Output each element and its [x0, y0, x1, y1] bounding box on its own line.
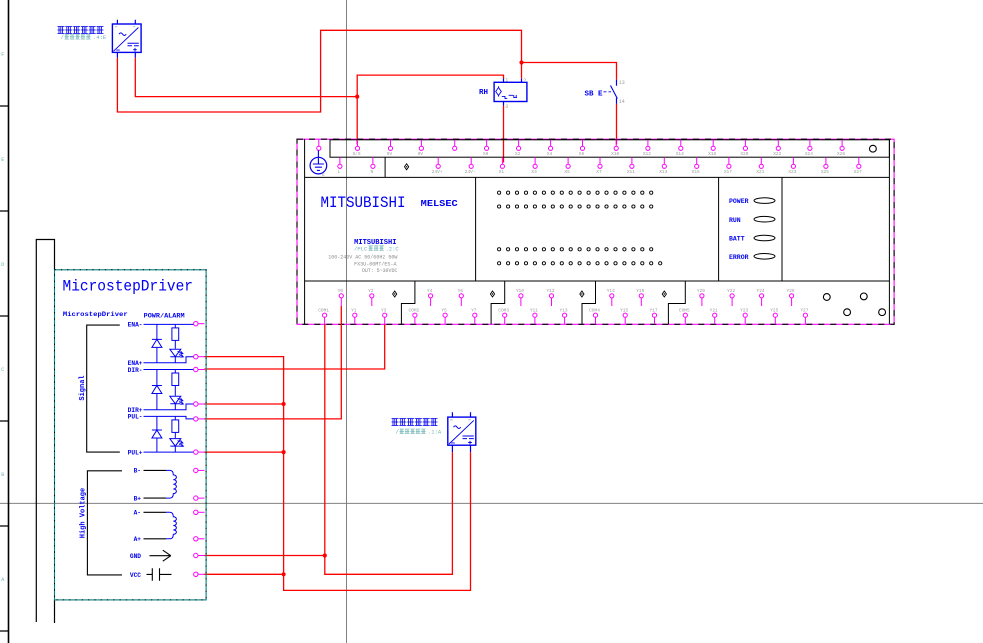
svg-text:POWER: POWER — [729, 198, 749, 205]
svg-text:Y3: Y3 — [381, 307, 387, 313]
svg-text:X26: X26 — [837, 151, 845, 157]
svg-text:X3: X3 — [531, 169, 537, 175]
svg-text:F: F — [1, 52, 4, 58]
svg-text:.4:E: .4:E — [93, 34, 107, 41]
svg-text:.2:C: .2:C — [386, 246, 400, 253]
svg-text:L: L — [338, 169, 341, 175]
svg-text:Y13: Y13 — [560, 307, 568, 313]
svg-text:Y25: Y25 — [770, 307, 778, 313]
svg-text:Y2: Y2 — [368, 288, 374, 294]
svg-text:X7: X7 — [596, 169, 602, 175]
svg-text:MELSEC: MELSEC — [421, 198, 458, 209]
svg-text:Y15: Y15 — [620, 307, 628, 313]
svg-text:/: / — [61, 34, 65, 41]
svg-text:SB E: SB E — [585, 91, 604, 99]
svg-text:/: / — [396, 429, 400, 436]
svg-text:X11: X11 — [627, 169, 635, 175]
svg-text:X21: X21 — [756, 169, 764, 175]
svg-text:2: 2 — [523, 78, 526, 84]
svg-text:Y26: Y26 — [787, 288, 795, 294]
svg-text:X5: X5 — [564, 169, 570, 175]
svg-text:Y21: Y21 — [710, 307, 718, 313]
svg-text:X22: X22 — [773, 151, 781, 157]
svg-text:DIR-: DIR- — [128, 367, 143, 374]
svg-text:VCC: VCC — [130, 572, 141, 579]
svg-text:X27: X27 — [854, 169, 862, 175]
svg-text:FX3U-60MT/ES-A: FX3U-60MT/ES-A — [354, 262, 397, 268]
svg-text:X25: X25 — [821, 169, 829, 175]
svg-text:1: 1 — [505, 78, 508, 84]
svg-text:D: D — [1, 262, 4, 268]
svg-text:X24: X24 — [805, 151, 813, 157]
svg-text:RH: RH — [479, 89, 488, 97]
svg-text:Y27: Y27 — [800, 307, 808, 313]
svg-text:OUT: 5~30VDC: OUT: 5~30VDC — [362, 268, 398, 274]
svg-text:X10: X10 — [611, 151, 619, 157]
svg-text:Y14: Y14 — [607, 288, 615, 294]
svg-text:Y11: Y11 — [530, 307, 538, 313]
svg-text:A-: A- — [134, 510, 141, 517]
svg-text:0V: 0V — [418, 151, 424, 157]
svg-text:X17: X17 — [724, 169, 732, 175]
svg-text:Y5: Y5 — [441, 307, 447, 313]
svg-text:X12: X12 — [643, 151, 651, 157]
svg-text:X4: X4 — [547, 151, 553, 157]
svg-text:COM2: COM2 — [408, 307, 419, 313]
svg-text:MicrostepDriver: MicrostepDriver — [63, 277, 194, 295]
svg-text:X20: X20 — [740, 151, 748, 157]
svg-text:X2: X2 — [515, 151, 521, 157]
svg-text:0V: 0V — [387, 151, 393, 157]
svg-text:Y24: Y24 — [757, 288, 765, 294]
svg-text:B-: B- — [134, 468, 141, 475]
svg-text:RUN: RUN — [729, 217, 741, 224]
svg-text:COM5: COM5 — [679, 307, 690, 313]
svg-text:BATT: BATT — [729, 236, 745, 243]
svg-text:Y20: Y20 — [697, 288, 705, 294]
svg-text:COM1: COM1 — [318, 307, 329, 313]
svg-text:13: 13 — [619, 80, 625, 86]
svg-text:100-240V AC 50/60Hz 50W: 100-240V AC 50/60Hz 50W — [328, 254, 398, 260]
svg-text:PUL+: PUL+ — [128, 449, 143, 456]
svg-text:Y22: Y22 — [727, 288, 735, 294]
svg-text:Y1: Y1 — [351, 307, 357, 313]
svg-text:B: B — [1, 472, 4, 478]
svg-text:Y6: Y6 — [458, 288, 464, 294]
svg-text:Y17: Y17 — [649, 307, 657, 313]
svg-text:ENA-: ENA- — [128, 322, 143, 329]
svg-text:X13: X13 — [659, 169, 667, 175]
svg-text:B+: B+ — [134, 495, 142, 502]
svg-text:A: A — [1, 577, 4, 583]
svg-text:14: 14 — [619, 99, 625, 105]
svg-text:A+: A+ — [134, 536, 142, 543]
svg-text:MicrostepDriver: MicrostepDriver — [63, 311, 128, 318]
svg-text:Signal: Signal — [79, 375, 87, 400]
svg-text:Y0: Y0 — [338, 288, 344, 294]
svg-text:N: N — [371, 169, 374, 175]
svg-text:X23: X23 — [788, 169, 796, 175]
svg-text:GND: GND — [130, 553, 141, 560]
svg-text:High Voltage: High Voltage — [80, 488, 88, 538]
svg-text:X6: X6 — [579, 151, 585, 157]
svg-text:24V-: 24V- — [465, 169, 476, 175]
svg-text:24V+: 24V+ — [432, 169, 443, 175]
svg-text:X15: X15 — [692, 169, 700, 175]
svg-text:Y16: Y16 — [636, 288, 644, 294]
svg-text:Y12: Y12 — [546, 288, 554, 294]
svg-text:.1:A: .1:A — [428, 429, 442, 436]
svg-text:3: 3 — [505, 104, 508, 110]
svg-text:E: E — [322, 172, 325, 178]
svg-text:E: E — [1, 157, 4, 163]
svg-text:Y10: Y10 — [516, 288, 524, 294]
svg-text:X1: X1 — [499, 169, 505, 175]
svg-text:S/S: S/S — [352, 151, 360, 157]
svg-text:C: C — [1, 367, 4, 373]
svg-text:PUL-: PUL- — [128, 414, 143, 421]
svg-text:/PLC: /PLC — [354, 246, 368, 253]
svg-text:Y4: Y4 — [427, 288, 433, 294]
svg-text:COM4: COM4 — [589, 307, 600, 313]
svg-text:COM3: COM3 — [498, 307, 509, 313]
svg-text:Y23: Y23 — [740, 307, 748, 313]
svg-text:X0: X0 — [483, 151, 489, 157]
svg-text:X16: X16 — [708, 151, 716, 157]
svg-text:X14: X14 — [676, 151, 684, 157]
svg-text:Y7: Y7 — [471, 307, 477, 313]
svg-text:MITSUBISHI: MITSUBISHI — [321, 194, 406, 212]
svg-text:ERROR: ERROR — [729, 254, 749, 261]
svg-text:POWR/ALARM: POWR/ALARM — [144, 313, 185, 320]
